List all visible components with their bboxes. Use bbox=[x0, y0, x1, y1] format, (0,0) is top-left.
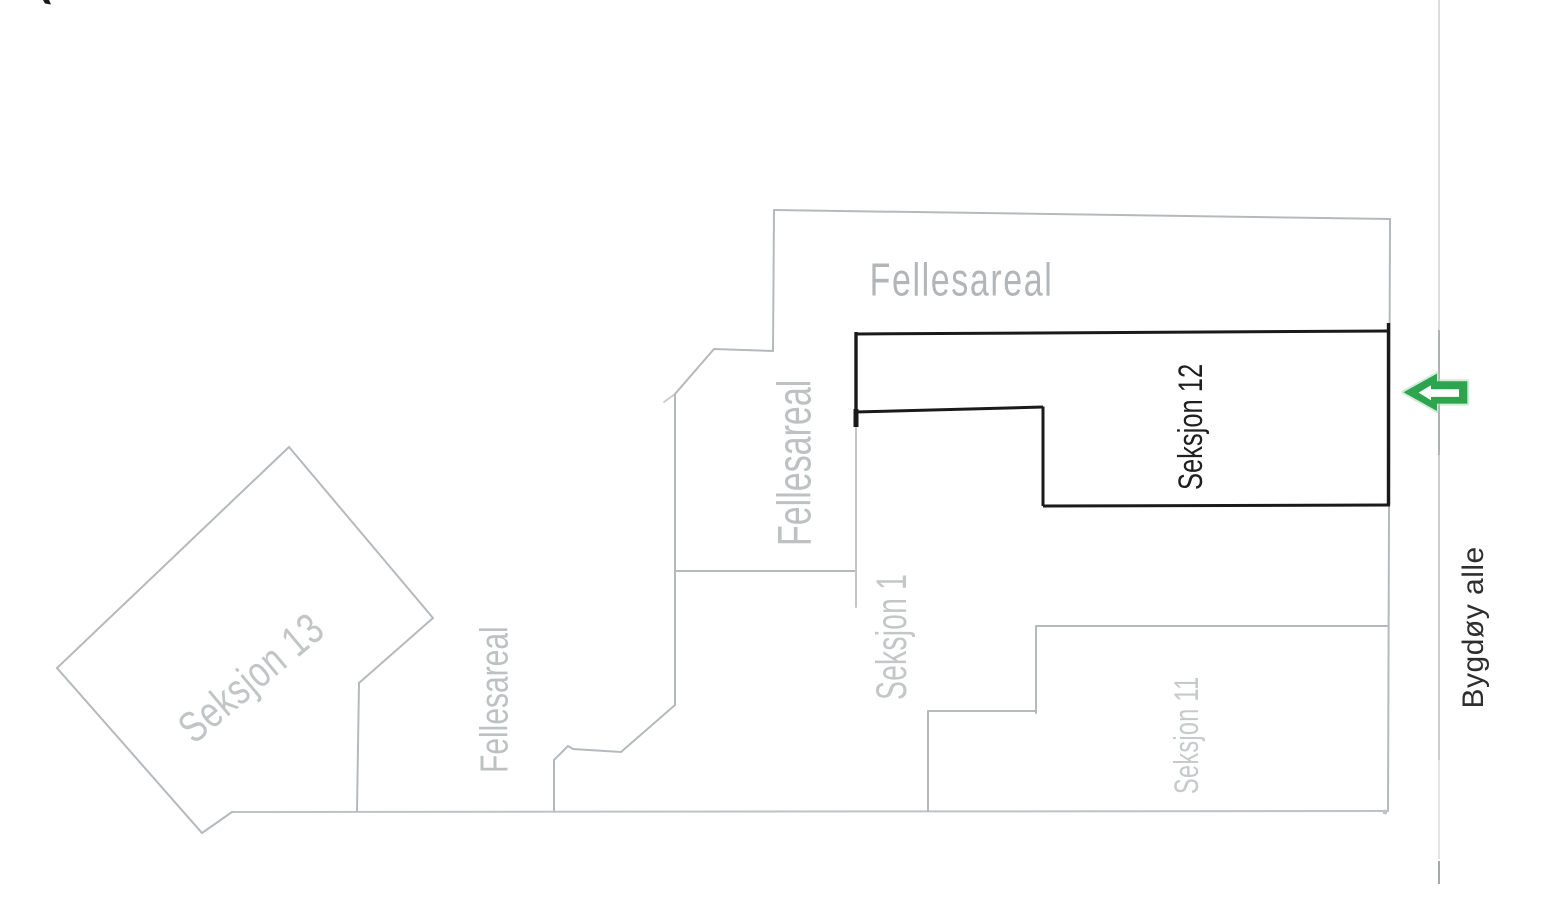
svg-text:Fellesareal: Fellesareal bbox=[768, 380, 821, 546]
svg-text:Seksjon 12: Seksjon 12 bbox=[1172, 364, 1210, 490]
svg-text:Fellesareal: Fellesareal bbox=[474, 626, 517, 773]
svg-text:Fellesareal: Fellesareal bbox=[870, 253, 1054, 305]
svg-text:Bygdøy alle: Bygdøy alle bbox=[1457, 546, 1490, 708]
svg-text:Seksjon 11: Seksjon 11 bbox=[1169, 677, 1206, 794]
svg-text:Seksjon 1: Seksjon 1 bbox=[867, 574, 915, 700]
